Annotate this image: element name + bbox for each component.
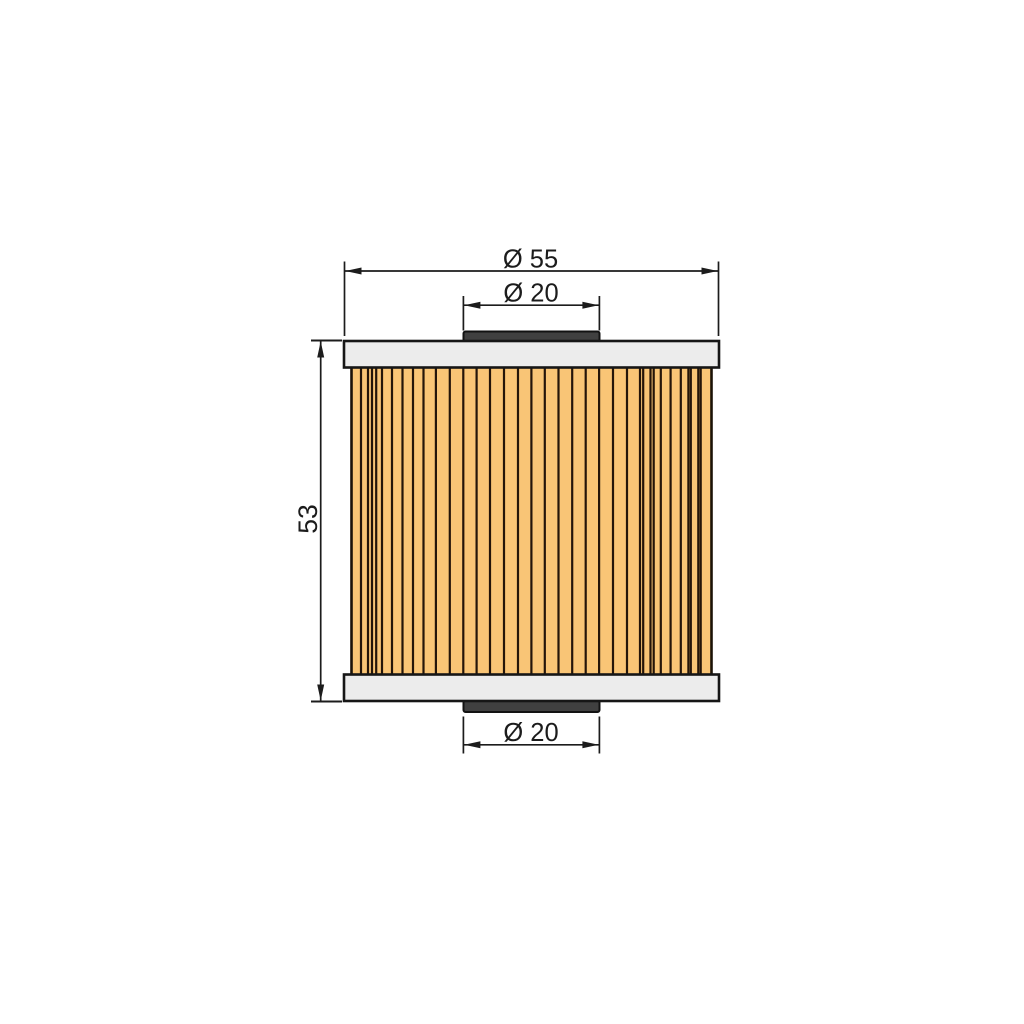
svg-text:Ø 55: Ø 55 <box>503 246 558 274</box>
svg-text:53: 53 <box>293 504 323 533</box>
svg-text:Ø 20: Ø 20 <box>503 279 558 307</box>
svg-text:Ø 20: Ø 20 <box>503 719 558 747</box>
